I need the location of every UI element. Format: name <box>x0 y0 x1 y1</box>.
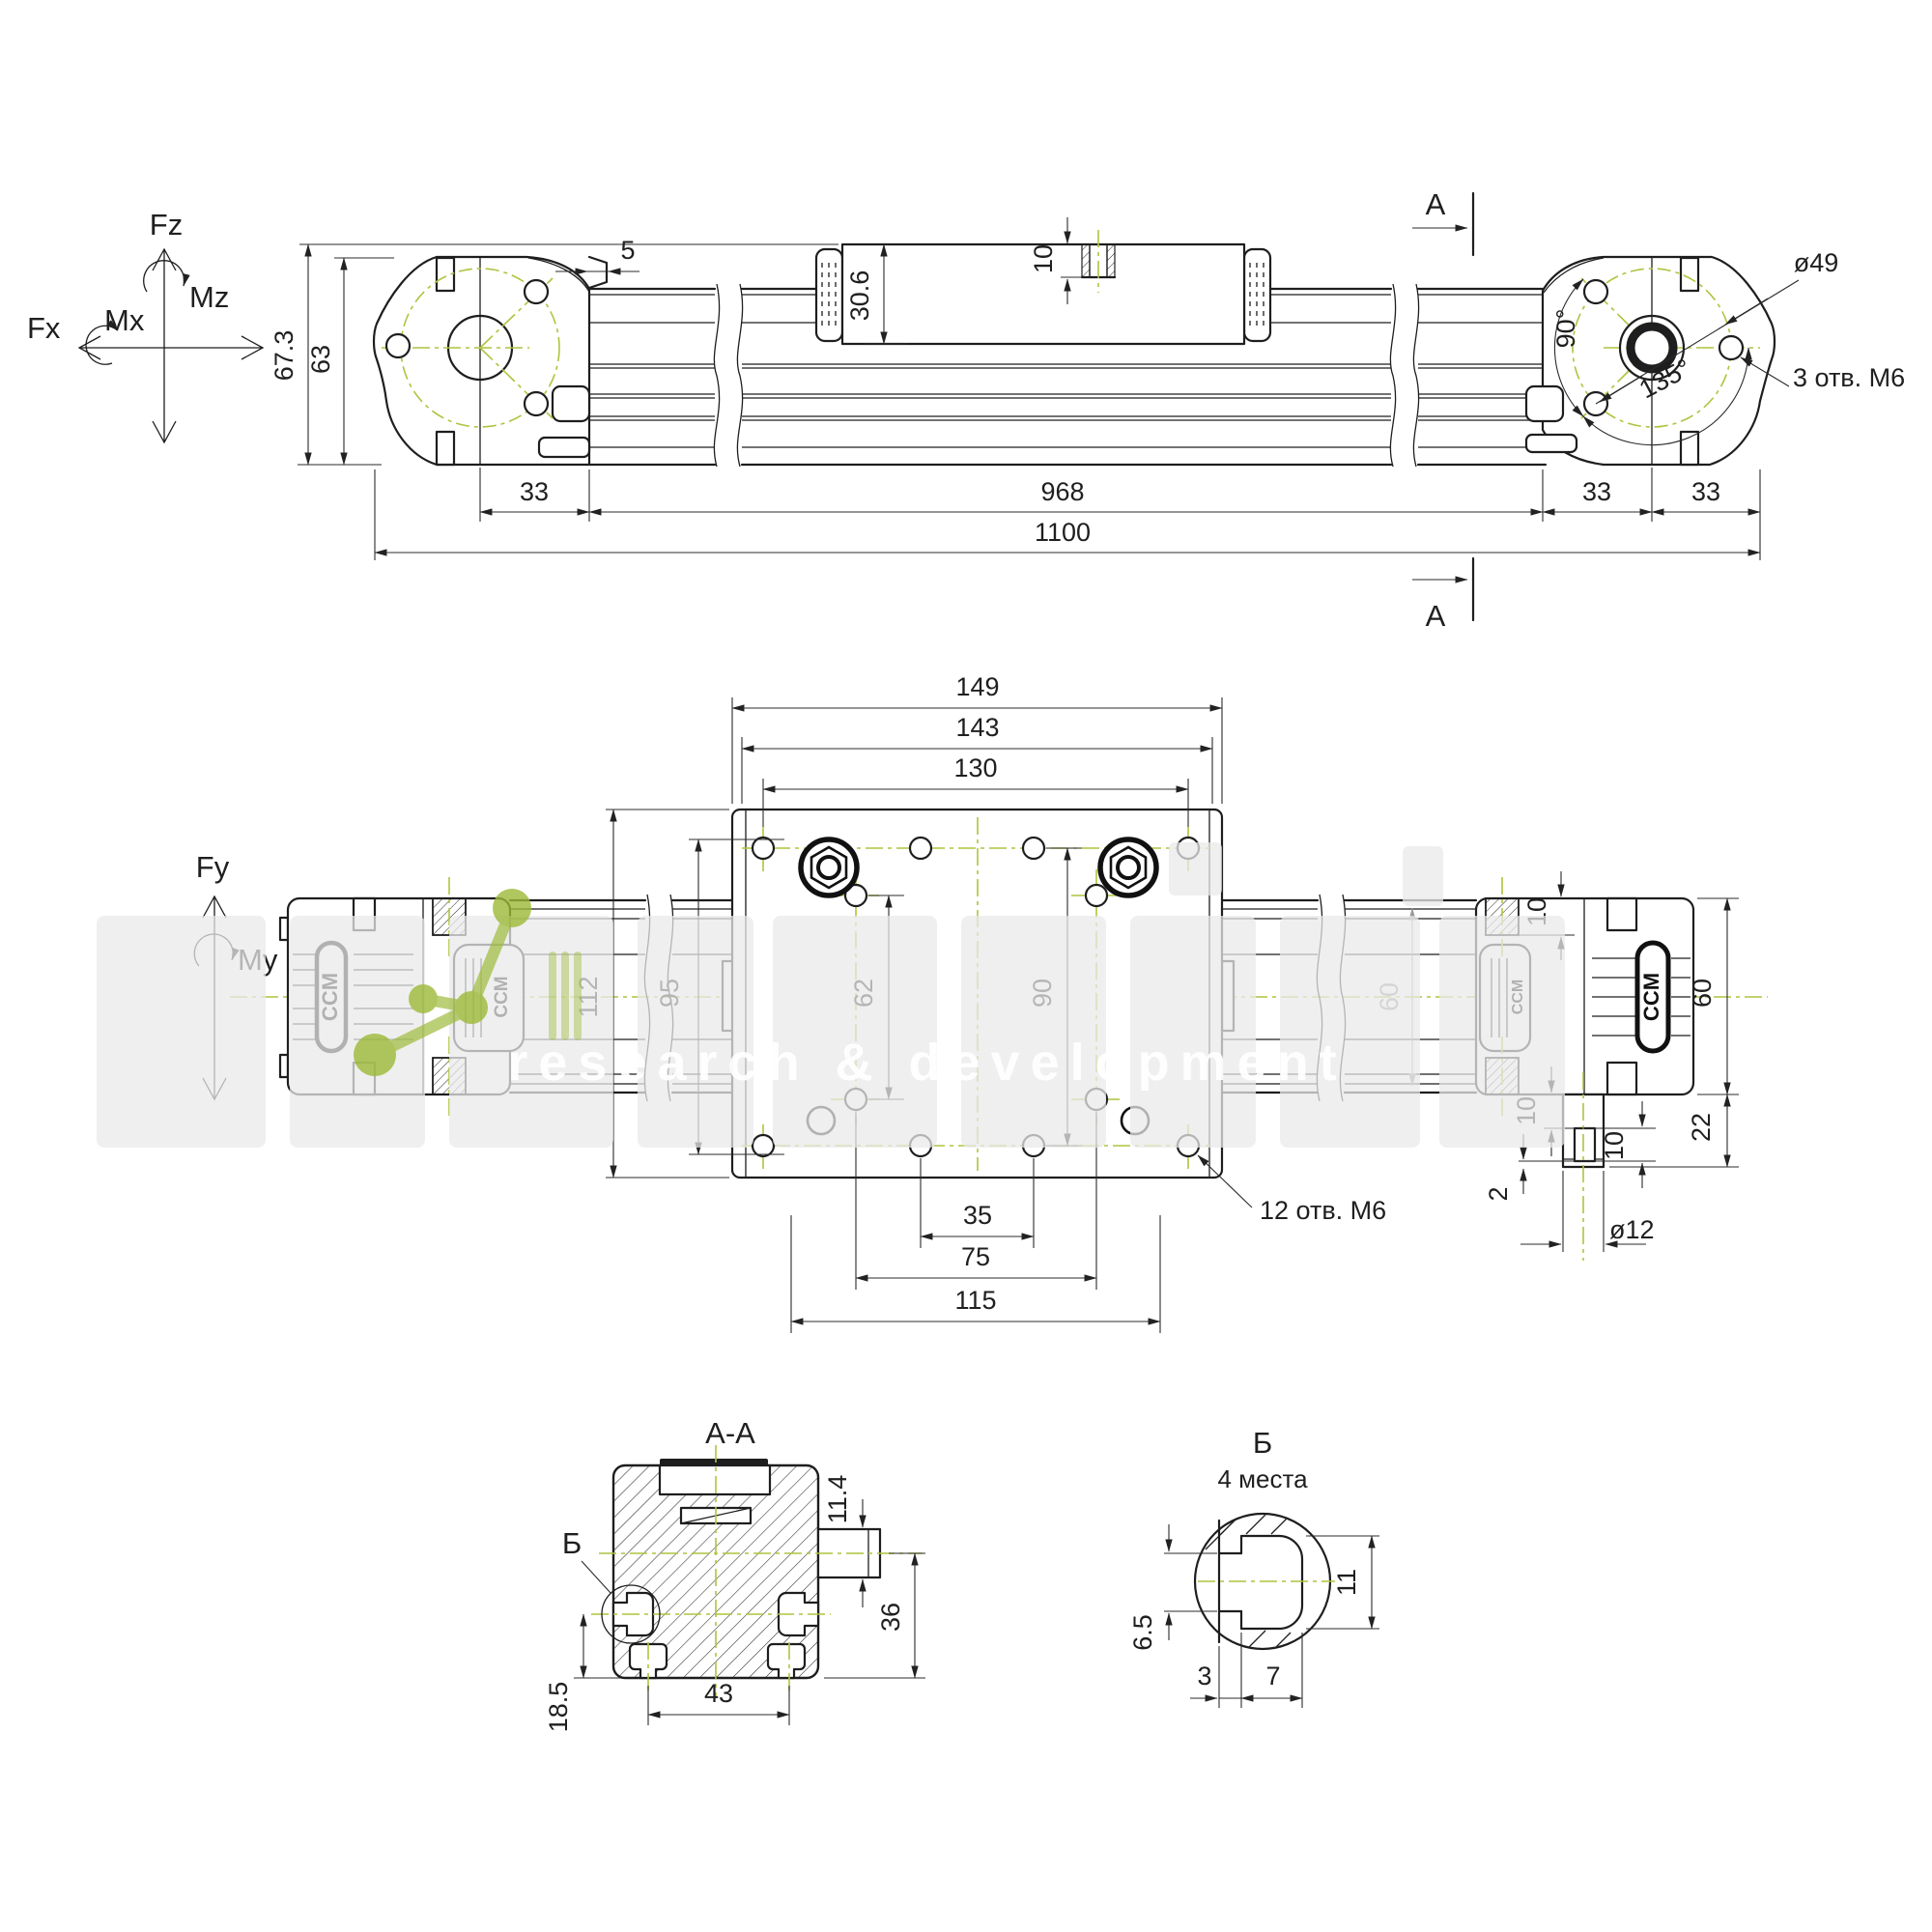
dim-63: 63 <box>306 345 335 374</box>
dim-130: 130 <box>953 753 997 782</box>
dim-2: 2 <box>1484 1186 1513 1201</box>
axis-fy-label: Fy <box>196 850 230 884</box>
dim-143: 143 <box>955 713 999 742</box>
section-mark-top: A <box>1412 187 1473 255</box>
watermark-tagline: research & development <box>507 1034 1347 1092</box>
dim-7: 7 <box>1265 1662 1280 1690</box>
dim-10-thread: 10 <box>1029 244 1058 273</box>
dim-33-left: 33 <box>520 477 549 506</box>
section-letter-top: A <box>1426 187 1446 221</box>
dim-11: 11 <box>1332 1569 1361 1596</box>
dim-11-4: 11.4 <box>823 1475 852 1524</box>
dim-115: 115 <box>954 1286 996 1315</box>
section-letter-bottom: A <box>1426 599 1446 633</box>
label-bolt-circle: ø49 <box>1794 248 1839 277</box>
dim-33-r2: 33 <box>1691 477 1720 506</box>
detail-b: Б 4 места 6.5 11 3 7 <box>1128 1426 1379 1708</box>
section-mark-bottom: A <box>1412 558 1473 633</box>
break-line <box>737 284 742 467</box>
dim-968: 968 <box>1040 477 1084 506</box>
top-view: 67.3 63 <box>270 187 1905 633</box>
cad-drawing-page: Fz Mz Mx Fx 67.3 63 <box>0 0 1932 1932</box>
brand-badge-text: CCM <box>1639 973 1663 1021</box>
top-carriage: 30.6 10 <box>816 217 1270 344</box>
top-length-dims: 33 968 33 33 1100 <box>375 468 1760 560</box>
dim-149: 149 <box>955 672 999 701</box>
dim-18-5: 18.5 <box>544 1682 573 1733</box>
section-aa: A-A Б 11.4 36 43 18.5 <box>544 1416 925 1732</box>
break-line <box>1413 284 1418 467</box>
linear-actuator-drawing: Fz Mz Mx Fx 67.3 63 <box>0 0 1932 1932</box>
detail-ref-letter: Б <box>562 1526 582 1560</box>
break-line <box>1390 284 1395 467</box>
dim-6-5: 6.5 <box>1128 1614 1157 1651</box>
dim-block-60: 60 <box>1688 979 1717 1008</box>
label-plate-holes: 12 отв. М6 <box>1260 1196 1386 1225</box>
dim-5: 5 <box>620 236 635 265</box>
axis-mz-label: Mz <box>189 280 229 314</box>
top-right-end-block: 90° 135° ø49 3 отв. М6 <box>1526 248 1905 465</box>
dim-67-3: 67.3 <box>270 330 298 382</box>
axes-side: Fz Mz Mx Fx <box>27 208 263 442</box>
label-end-holes: 3 отв. М6 <box>1793 363 1905 392</box>
dim-36: 36 <box>876 1603 905 1632</box>
break-line <box>714 284 719 467</box>
dim-angle-90: 90° <box>1551 309 1580 349</box>
top-left-end-block: 5 <box>374 236 639 465</box>
axis-fz-label: Fz <box>150 208 183 241</box>
dim-33-r1: 33 <box>1582 477 1611 506</box>
detail-b-subtitle: 4 места <box>1217 1464 1308 1493</box>
dim-3: 3 <box>1197 1662 1211 1690</box>
axis-mx-label: Mx <box>104 303 145 337</box>
dim-43: 43 <box>704 1679 733 1708</box>
dim-1100: 1100 <box>1035 518 1091 547</box>
dim-35: 35 <box>963 1201 992 1230</box>
dim-22: 22 <box>1687 1113 1716 1142</box>
dim-30-6: 30.6 <box>845 270 874 322</box>
dim-shaft-d12: ø12 <box>1609 1215 1655 1244</box>
detail-b-title: Б <box>1253 1426 1272 1460</box>
section-aa-title: A-A <box>705 1416 755 1450</box>
dim-key-len-10: 10 <box>1600 1131 1629 1160</box>
dim-75: 75 <box>961 1242 990 1271</box>
axis-fx-label: Fx <box>27 311 61 345</box>
